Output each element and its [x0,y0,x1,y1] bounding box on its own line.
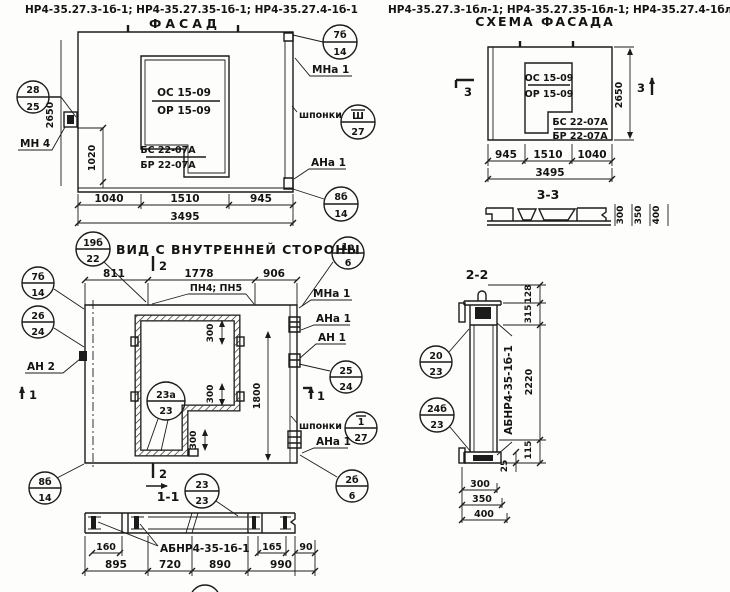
sec22-dim-400: 400 [474,509,494,520]
facade-title: ФАСАД [149,16,221,31]
facade-dim-a: 1040 [94,193,123,205]
sec11-dim-90: 90 [299,542,313,553]
schema-dim-b: 1510 [533,149,562,161]
callout-top: 26 [31,311,45,322]
facade-dim-c: 945 [250,193,272,205]
inner-dim-a: 811 [103,268,125,280]
pn-leaders [152,294,254,304]
callout-bottom: 25 [26,102,39,113]
sec11-dim-c: 890 [209,559,231,571]
sec22-dim-300: 300 [470,479,490,490]
sec22-component-label: АБНР4-35-1б-1 [503,345,515,435]
callout-bottom: 14 [333,47,347,58]
section-marker-3-left: 3 [456,80,474,99]
callout-bottom: 14 [334,209,348,220]
facade-sill-mark-bottom: БР 22-07А [140,160,196,171]
bracket-mid-right [289,354,300,367]
callout-sh-27: Ш 27 [341,105,375,139]
schema-dim-a: 945 [495,149,517,161]
callout-top: 19б [83,238,103,249]
callout-top: 1 [358,417,365,428]
facade-window-mark-top: ОС 15-09 [157,87,211,99]
inner-an1-leader [300,344,346,358]
sec22-dim-315: 315 [524,305,534,324]
callout-8b-14: 8б 14 [293,187,358,221]
callout-top: 2б [345,475,359,486]
callout-bottom: 6 [345,258,352,269]
mn4-label: МН 4 [20,138,50,150]
section-2-2-title: 2-2 [466,267,489,282]
facade-sill-mark-top: БС 22-07А [140,145,196,156]
dim-300b: 300 [206,385,216,404]
sec22-column [470,325,497,452]
callout-top: 8б [38,477,52,488]
dim-300c: 300 [189,431,199,450]
marker-number: 2 [159,259,167,273]
callout-top: 23 [195,480,208,491]
callout-bottom: 23 [429,367,442,378]
callout-bottom: 23 [430,420,443,431]
callout-7b-14: 7б 14 [293,25,357,59]
dim-300a: 300 [206,324,216,343]
section-2-2-drawing: 2-2 АБНР4-35-1б-1 128 315 2220 115 25 [420,267,546,523]
inner-view-drawing: 19б 22 ВИД С ВНУТРЕННЕЙ СТОРОНЫ 811 1778… [22,232,377,504]
callout-top: 7б [333,30,347,41]
schema-top-ticks [520,41,573,47]
clipped-callout-circle [190,585,220,592]
sec22-dim-128: 128 [524,285,534,304]
callout-bottom: 27 [354,433,367,444]
pn-label: ПН4; ПН5 [190,283,242,294]
sec11-component-label: АБНР4-35-1б-1 [160,543,250,555]
section-1-1-drawing: 2 1-1 23 23 [82,463,318,592]
facade-ana1-label: АНа 1 [311,157,346,169]
drawing-svg: НР4-35.27.3-1б-1; НР4-35.27.35-1б-1; НР4… [0,0,730,592]
callout-top: 24б [427,404,447,415]
schema-dim-c: 1040 [577,149,606,161]
callout-bottom: 22 [86,254,99,265]
schema-title: СХЕМА ФАСАДА [475,14,615,29]
marker-number: 3 [637,81,645,95]
inner-an1-label: АН 1 [318,332,346,344]
callout-top: Ш [352,111,364,122]
section-3-3-title: 3-3 [537,187,560,202]
sec33-dim-400: 400 [652,206,662,225]
an2-label: АН 2 [27,361,55,373]
header-left-codes: НР4-35.27.3-1б-1; НР4-35.27.35-1б-1; НР4… [25,4,358,16]
dim-1800: 1800 [252,382,263,409]
schema-facade-drawing: СХЕМА ФАСАДА ОС 15-09 ОР 15-09 БС 22-07А… [456,14,668,226]
callout-bottom: 24 [31,327,45,338]
inner-shponki-leader [291,416,297,423]
sec33-dim-300: 300 [616,206,626,225]
facade-dim-b: 1510 [170,193,199,205]
callout-top: 8б [334,192,348,203]
inner-ana1-top-leader [301,325,350,330]
sec11-dim-160: 160 [96,542,116,553]
schema-sill-mark-top: БС 22-07А [552,117,608,128]
inner-ana1-top-label: АНа 1 [316,313,351,325]
callout-top: 28 [26,85,40,96]
sec22-dim-25: 25 [500,460,510,473]
callout-bottom: 14 [38,493,52,504]
sec22-top-assembly [459,291,501,325]
facade-shponki-label: шпонки [299,110,342,121]
marker-number: 2 [159,467,167,481]
section-1-1-title: 1-1 [157,489,180,504]
facade-1020-dim: 1020 [87,144,98,171]
inner-ana1-bot-label: АНа 1 [316,436,351,448]
callout-bottom: 14 [31,288,45,299]
section-marker-2-bottom: 2 [146,463,167,486]
callout-bottom: 6 [349,491,356,502]
section-3-3-profile [486,208,611,225]
callout-26-24: 26 24 [22,306,84,347]
section-marker-1-left: 1 [22,387,37,402]
facade-ana1-leader [294,169,346,179]
callout-top: 25 [339,366,352,377]
inner-ana1-bot-leader [302,448,348,453]
callout-23-23: 23 23 [185,474,238,516]
callout-bottom: 24 [339,382,353,393]
callout-top: 20 [429,351,443,362]
section-marker-2-top: 2 [153,256,167,273]
sec22-dim-115: 115 [524,441,534,460]
inner-dim-b: 1778 [184,268,213,280]
callout-top: 7б [31,272,45,283]
marker-number: 1 [29,388,37,402]
inner-dim-c: 906 [263,268,285,280]
sec22-dim-350: 350 [472,494,492,505]
section-marker-3-right: 3 [637,78,652,95]
sec11-dim-165: 165 [262,542,282,553]
callout-24b-23: 24б 23 [420,398,471,452]
facade-mna1-label: МНа 1 [312,64,349,76]
facade-dim-total: 3495 [170,211,199,223]
sec11-dim-d: 990 [270,559,292,571]
sec11-dim-b: 720 [159,559,181,571]
sec33-dim-350: 350 [634,206,644,225]
inner-shponki-label: шпонки [299,421,342,432]
marker-number: 3 [464,85,472,99]
callout-bottom: 27 [351,127,364,138]
callout-2b-6: 2б 6 [300,455,368,502]
marker-number: 1 [317,389,325,403]
an2-anchor [79,351,87,361]
sec22-bottom-assembly [459,448,501,463]
schema-window-mark-bottom: ОР 15-09 [525,89,574,100]
mn4-anchor-fill [67,115,74,124]
inner-mna1-leader [299,300,352,308]
callout-8b-14-inner: 8б 14 [29,464,84,504]
sec11-dim-a: 895 [105,559,127,571]
callout-23a-23: 23а 23 [147,382,185,451]
callout-top: 23а [156,390,176,401]
schema-dim-total: 3495 [535,167,564,179]
callout-bottom: 23 [195,496,208,507]
callout-bottom: 23 [159,406,172,417]
inner-mna1-label: МНа 1 [313,288,350,300]
sec22-dim-2220: 2220 [524,368,535,395]
inner-view-title: ВИД С ВНУТРЕННЕЙ СТОРОНЫ [116,242,361,257]
schema-dim-height: 2650 [614,81,625,108]
callout-20-23: 20 23 [420,329,469,378]
callout-top: 1а [341,242,354,253]
schema-window-mark-top: ОС 15-09 [525,73,574,84]
callout-7b-14-inner: 7б 14 [22,267,84,309]
schema-sill-mark-bottom: БР 22-07А [552,131,608,142]
section-marker-1-right: 1 [303,387,325,403]
scanned-drawing-sheet: НР4-35.27.3-1б-1; НР4-35.27.35-1б-1; НР4… [0,0,730,592]
facade-window-mark-bottom: ОР 15-09 [157,105,211,117]
bracket-top-right [289,317,300,332]
facade-drawing: ФАСАД ОС 15-09 ОР 15-09 БС 22-07А БР 22-… [17,16,375,226]
